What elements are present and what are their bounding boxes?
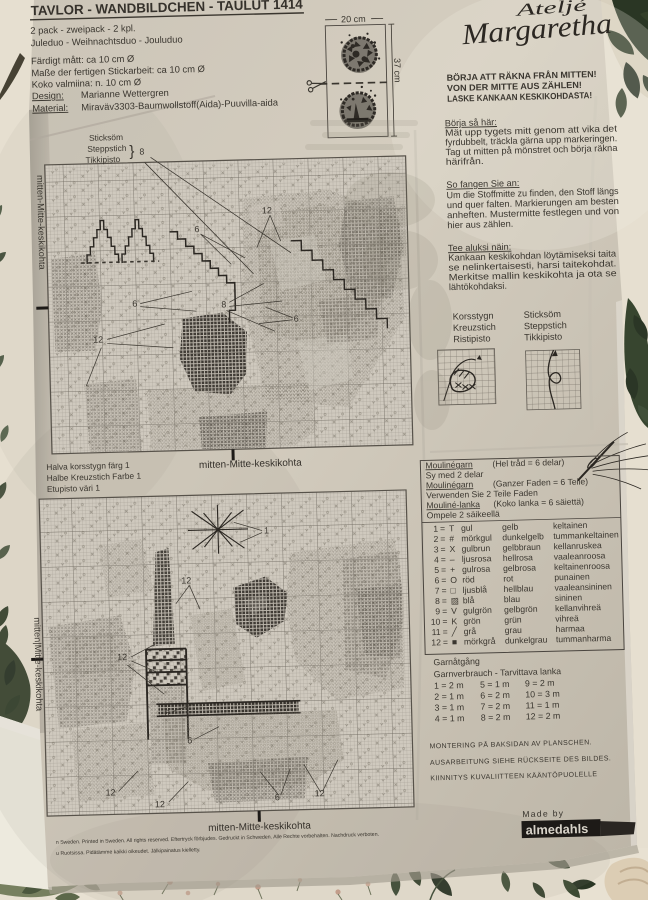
svg-text:blå: blå <box>463 595 475 605</box>
svg-text:grön: grön <box>463 616 481 626</box>
svg-text:9: 9 <box>435 606 440 616</box>
svg-text:9 = 2 m: 9 = 2 m <box>525 678 555 689</box>
svg-text:2: 2 <box>433 534 438 544</box>
svg-text:5: 5 <box>434 565 439 575</box>
svg-text:37 cm: 37 cm <box>392 58 403 83</box>
svg-text:Steppstich: Steppstich <box>87 143 127 154</box>
svg-text:7: 7 <box>435 586 440 596</box>
svg-text:12: 12 <box>262 205 272 215</box>
svg-text:▨: ▨ <box>451 595 459 605</box>
svg-text:gelb: gelb <box>502 522 519 532</box>
svg-text:Ompele 2 säikeellä: Ompele 2 säikeellä <box>427 509 501 521</box>
svg-text:blau: blau <box>504 594 521 604</box>
svg-text:Tikkipisto: Tikkipisto <box>85 154 120 165</box>
svg-text:12: 12 <box>105 787 115 797</box>
svg-text:K: K <box>451 616 457 626</box>
svg-text:11: 11 <box>432 627 441 637</box>
svg-text:härifrån.: härifrån. <box>446 156 484 167</box>
svg-text:1: 1 <box>433 524 438 534</box>
svg-text:gulrosa: gulrosa <box>462 564 491 575</box>
svg-text:12: 12 <box>117 652 127 662</box>
svg-text:}: } <box>129 143 134 160</box>
svg-text:kellanvihreä: kellanvihreä <box>555 602 601 613</box>
svg-text:Halva korsstygn färg 1: Halva korsstygn färg 1 <box>46 460 130 472</box>
svg-text:mörkgul: mörkgul <box>461 533 492 544</box>
svg-text:hier aus zählen.: hier aus zählen. <box>447 219 513 231</box>
svg-text:hellrosa: hellrosa <box>503 552 534 563</box>
svg-text:=: = <box>440 534 445 544</box>
svg-text:lähtökohdaksi.: lähtökohdaksi. <box>449 281 507 292</box>
svg-text:gelbrosa: gelbrosa <box>503 562 536 573</box>
svg-text:Sticksöm: Sticksöm <box>524 309 562 320</box>
svg-text:rot: rot <box>503 573 514 583</box>
svg-text:#: # <box>449 534 454 544</box>
svg-text:tummanharma: tummanharma <box>556 633 612 644</box>
svg-text:12: 12 <box>181 575 191 585</box>
svg-text:6: 6 <box>434 575 439 585</box>
svg-text:=: = <box>442 606 447 616</box>
svg-text:11 = 1 m: 11 = 1 m <box>525 700 559 711</box>
svg-text:mörkgrå: mörkgrå <box>464 636 496 647</box>
svg-text:keltainen: keltainen <box>553 520 588 531</box>
svg-text:Steppstich: Steppstich <box>524 320 567 331</box>
svg-text:gelbbraun: gelbbraun <box>502 542 541 553</box>
svg-text:8: 8 <box>139 146 144 156</box>
svg-text:gelbgrön: gelbgrön <box>504 604 538 615</box>
svg-text:6: 6 <box>187 735 192 745</box>
svg-text:2 = 1 m: 2 = 1 m <box>434 691 464 702</box>
svg-text:Sticksöm: Sticksöm <box>89 132 123 143</box>
svg-text:dunkelgrau: dunkelgrau <box>505 635 548 646</box>
svg-text:Kreuzstich: Kreuzstich <box>453 322 496 333</box>
svg-text:5 = 1 m: 5 = 1 m <box>480 679 510 690</box>
svg-text:7 = 2 m: 7 = 2 m <box>480 701 510 712</box>
svg-text:Sy med 2 delar: Sy med 2 delar <box>426 469 484 480</box>
svg-text:12 = 2 m: 12 = 2 m <box>526 711 561 722</box>
svg-text:■: ■ <box>452 637 457 647</box>
svg-text:punainen: punainen <box>554 571 590 582</box>
svg-text:hellblau: hellblau <box>503 583 533 594</box>
svg-text:4: 4 <box>434 555 439 565</box>
svg-text:grau: grau <box>504 625 522 635</box>
svg-text:6 = 2 m: 6 = 2 m <box>480 690 510 701</box>
svg-text:sininen: sininen <box>555 592 583 603</box>
svg-text:vihreä: vihreä <box>555 613 579 624</box>
svg-text:=: = <box>443 627 448 637</box>
svg-text:6: 6 <box>294 314 299 324</box>
svg-text:12: 12 <box>155 799 165 809</box>
svg-text:1 = 2 m: 1 = 2 m <box>434 680 464 691</box>
svg-text:Etupisto väri 1: Etupisto väri 1 <box>47 483 101 494</box>
svg-text:+: + <box>450 565 455 575</box>
svg-text:gul: gul <box>461 523 473 533</box>
svg-text:röd: röd <box>462 574 475 584</box>
svg-text:Made by: Made by <box>522 808 564 819</box>
svg-text:=: = <box>442 616 447 626</box>
svg-text:=: = <box>443 637 448 647</box>
svg-text:3 = 1 m: 3 = 1 m <box>434 702 464 713</box>
svg-text:12: 12 <box>431 637 441 647</box>
svg-text:almedahls: almedahls <box>525 821 588 838</box>
svg-text:8: 8 <box>221 299 226 309</box>
svg-text:=: = <box>440 523 445 533</box>
svg-text:tummankeltainen: tummankeltainen <box>553 529 619 541</box>
svg-text:O: O <box>450 575 457 585</box>
svg-text:gulbrun: gulbrun <box>461 543 490 554</box>
svg-text:Korsstygn: Korsstygn <box>453 311 494 322</box>
svg-text:X: X <box>449 544 455 554</box>
svg-text:=: = <box>440 544 445 554</box>
svg-text:10 = 3 m: 10 = 3 m <box>525 689 560 700</box>
svg-text:6: 6 <box>164 708 169 718</box>
svg-text:20 cm: 20 cm <box>341 14 366 25</box>
svg-text:6: 6 <box>194 224 199 234</box>
svg-text:–: – <box>450 554 455 564</box>
svg-text:gulgrön: gulgrön <box>463 605 492 616</box>
svg-text:12: 12 <box>93 335 103 345</box>
svg-text:=: = <box>442 596 447 606</box>
svg-text:1: 1 <box>264 525 269 535</box>
svg-text:ljusblå: ljusblå <box>462 584 487 595</box>
svg-text:harmaa: harmaa <box>555 623 585 634</box>
svg-text:=: = <box>441 554 446 564</box>
svg-text:10: 10 <box>431 617 441 627</box>
svg-text:4 = 1 m: 4 = 1 m <box>435 713 465 724</box>
svg-text:=: = <box>441 585 446 595</box>
svg-text:ljusrosa: ljusrosa <box>462 553 492 564</box>
svg-text:grå: grå <box>464 626 477 636</box>
svg-text:Ristipisto: Ristipisto <box>453 333 491 344</box>
svg-text:=: = <box>441 565 446 575</box>
svg-text:grün: grün <box>504 615 522 625</box>
svg-text:3: 3 <box>434 544 439 554</box>
svg-text:keltainenroosa: keltainenroosa <box>554 561 610 572</box>
svg-text:dunkelgelb: dunkelgelb <box>502 531 544 542</box>
svg-text:V: V <box>451 606 457 616</box>
svg-text:6: 6 <box>132 299 137 309</box>
svg-text:8: 8 <box>435 596 440 606</box>
svg-text:Garnåtgång: Garnåtgång <box>433 656 480 667</box>
svg-text:8 = 2 m: 8 = 2 m <box>481 712 511 723</box>
svg-text:vaaleansininen: vaaleansininen <box>554 581 612 592</box>
svg-text:Tikkipisto: Tikkipisto <box>524 332 562 343</box>
svg-text:=: = <box>441 575 446 585</box>
